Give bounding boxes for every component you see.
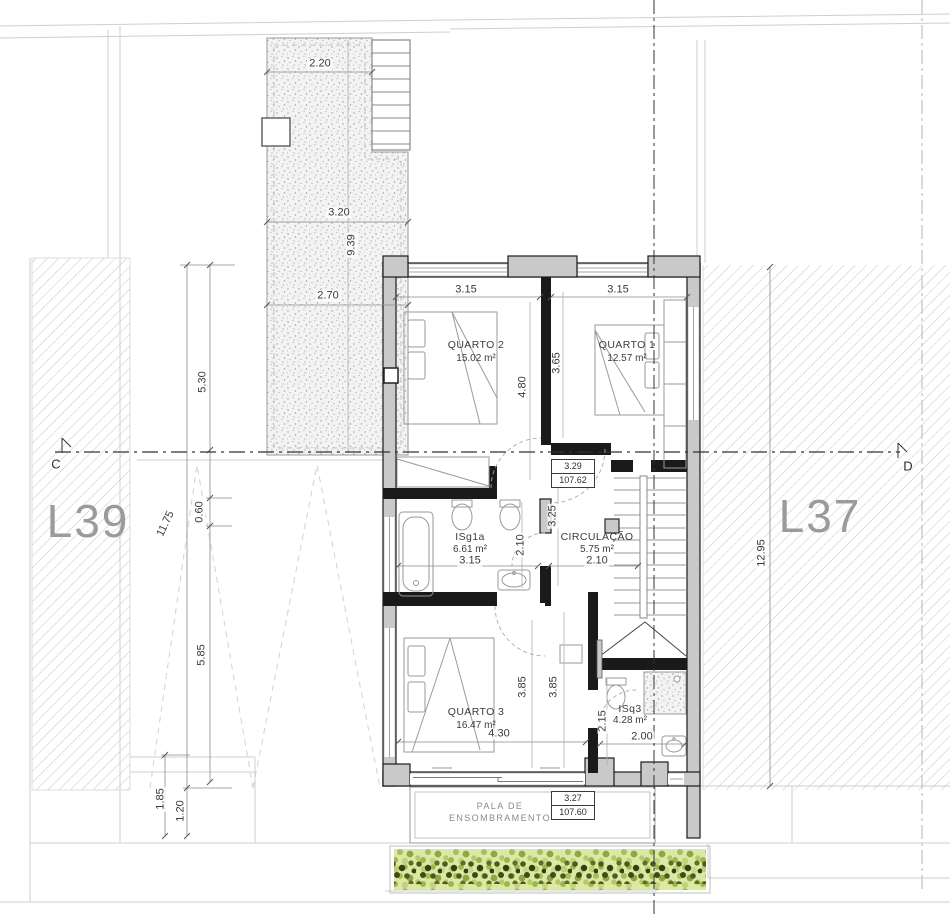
room-label-isq3: ISq3 xyxy=(618,704,641,715)
door-arc-quarto2 xyxy=(491,438,541,488)
toilet-isg1a xyxy=(500,500,520,530)
room-label-isg1a: ISg1a xyxy=(455,532,484,543)
canopy-label-line1: PALA DE xyxy=(449,800,551,812)
canopy-label: PALA DE ENSOMBRAMENTO xyxy=(449,800,551,824)
dim-q1-depth: 3.65 xyxy=(552,350,563,375)
roof-ladder xyxy=(372,40,410,150)
wardrobe-quarto1 xyxy=(664,300,686,468)
dim-q3-depth-b: 3.85 xyxy=(549,674,560,699)
stair-direction-triangle xyxy=(600,622,686,656)
dim-isq3-depth: 2.15 xyxy=(598,708,609,733)
floor-plan-drawing xyxy=(0,0,950,917)
bed-quarto3 xyxy=(404,638,494,752)
room-label-quarto1: QUARTO 1 xyxy=(599,340,656,351)
level-marker-upper: 3.29 107.62 xyxy=(551,459,595,488)
terrace-skylight xyxy=(262,118,290,146)
hedge xyxy=(390,846,710,893)
level-upper-height: 3.29 xyxy=(552,460,594,474)
shower xyxy=(644,672,686,714)
level-lower-elevation: 107.60 xyxy=(552,806,594,819)
dim-q1-width: 3.15 xyxy=(605,285,630,296)
lot-label-l37: L37 xyxy=(779,493,862,539)
dim-terrace-low: 2.70 xyxy=(315,291,340,302)
dim-landing-depth: 3.25 xyxy=(548,503,559,528)
stair-handrail xyxy=(640,476,647,618)
patio-projection-lines xyxy=(150,465,380,788)
dim-terrace-mid: 3.20 xyxy=(326,208,351,219)
level-upper-elevation: 107.62 xyxy=(552,474,594,487)
bidet xyxy=(452,500,472,530)
door-leaf-isq3 xyxy=(597,640,602,678)
dim-right-depth: 12.95 xyxy=(757,537,768,569)
dim-left-offset: 0.60 xyxy=(195,499,206,524)
lot-label-l39: L39 xyxy=(47,498,130,544)
room-area-circulacao: 5.75 m² xyxy=(580,545,614,555)
canopy-label-line2: ENSOMBRAMENTO xyxy=(449,812,551,824)
room-area-isq3: 4.28 m² xyxy=(613,716,647,726)
room-area-quarto2: 15.02 m² xyxy=(456,354,495,364)
dim-left-upper: 5.30 xyxy=(198,369,209,394)
dim-q2-depth: 4.80 xyxy=(518,374,529,399)
wall-niche xyxy=(384,368,398,383)
level-lower-height: 3.27 xyxy=(552,792,594,806)
dim-q3-width: 4.30 xyxy=(486,729,511,740)
dim-left-foot-a: 1.85 xyxy=(156,786,167,811)
room-area-quarto1: 12.57 m² xyxy=(607,354,646,364)
dim-q2-width: 3.15 xyxy=(453,285,478,296)
room-label-quarto3: QUARTO 3 xyxy=(448,707,505,718)
dim-terrace-depth: 9.39 xyxy=(347,232,358,257)
dim-terrace-top: 2.20 xyxy=(307,59,332,70)
room-area-isg1a: 6.61 m² xyxy=(453,545,487,555)
section-marker-d: D xyxy=(903,460,912,473)
section-marker-c: C xyxy=(51,458,60,471)
closet-quarto2 xyxy=(397,457,489,487)
dim-left-lower: 5.85 xyxy=(197,642,208,667)
dim-isq3-width: 2.00 xyxy=(629,732,654,743)
bathtub xyxy=(399,512,433,596)
dim-bath-width: 3.15 xyxy=(457,556,482,567)
floor-plan-canvas: L39 L37 C D QUARTO 2 15.02 m² QUARTO 1 1… xyxy=(0,0,950,917)
door-arc-quarto3 xyxy=(495,606,545,656)
dim-q3-depth-a: 3.85 xyxy=(518,674,529,699)
dim-bath-depth: 2.10 xyxy=(516,532,527,557)
dim-circ-width: 2.10 xyxy=(584,556,609,567)
bed-quarto2 xyxy=(404,312,497,424)
nightstand-quarto3 xyxy=(560,645,582,663)
washbasin-isg1a xyxy=(498,570,530,590)
dim-left-foot-b: 1.20 xyxy=(176,798,187,823)
level-marker-lower: 3.27 107.60 xyxy=(551,791,595,820)
room-label-circulacao: CIRCULAÇÃO xyxy=(561,532,634,543)
room-label-quarto2: QUARTO 2 xyxy=(448,340,505,351)
